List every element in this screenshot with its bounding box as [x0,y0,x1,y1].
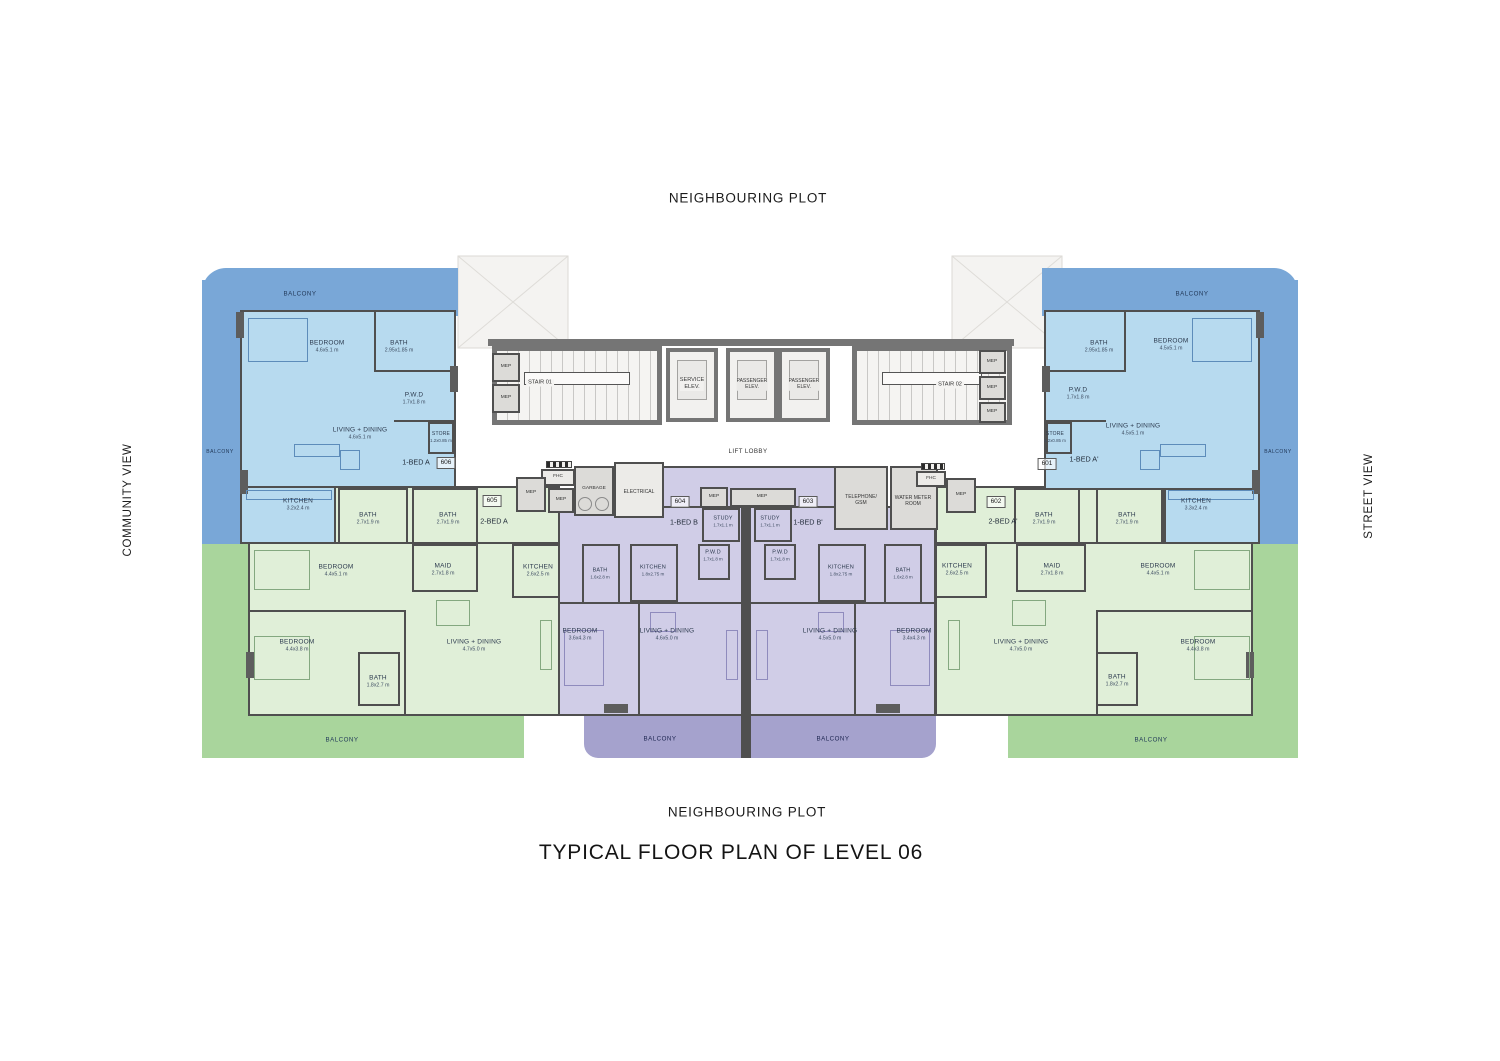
garbage-label: GARBAGE [582,486,606,492]
room-label-bedroom: BEDROOM4.4x5.1 m [319,563,354,578]
pillar [246,652,254,678]
room-label-living-dining: LIVING + DINING4.5x5.1 m [1106,422,1160,437]
wall [638,604,640,714]
unit-name-604: 1-BED B [670,518,698,527]
unit-number-603: 603 [799,496,818,508]
passenger-elev-label: PASSENGER ELEV. [789,378,820,391]
electrical-label: ELECTRICAL [624,489,655,495]
mep-label: MEP [987,409,997,415]
wall [248,610,406,612]
stair-02-landing [882,372,982,385]
wall [374,310,376,372]
furniture-sofa [726,630,738,680]
mep-label: MEP [556,497,566,503]
unit-name-601: 1-BED A' [1070,455,1099,464]
pillar [1256,312,1264,338]
furniture-table [340,450,360,470]
garbage-bin-1 [578,497,592,511]
balcony-band-top-right [1042,268,1298,316]
mep-label: MEP [987,385,997,391]
wall [1046,370,1126,372]
core-top-wall [488,339,1014,346]
mep-label: MEP [501,395,511,401]
furniture-sofa [948,620,960,670]
room-label-kitchen: KITCHEN2.6x2.5 m [523,563,553,578]
pillar [1042,366,1050,392]
telephone-gsm-label: TELEPHONE/ GSM [845,494,877,507]
balcony-band-right-lower [1248,544,1298,758]
room-label-kitchen: KITCHEN3.2x2.4 m [283,497,313,512]
room-label-bath: BATH2.95x1.85 m [385,339,414,354]
furniture-sofa [540,620,552,670]
furniture-bed [1192,318,1252,362]
room-label-bath: BATH2.95x1.85 m [1085,339,1114,354]
pillar [236,312,244,338]
furniture-table [1140,450,1160,470]
fhc-hatch-right [921,463,945,470]
furniture-sofa [294,444,340,457]
unit-number-606: 606 [437,457,456,469]
balcony-label: BALCONY [1134,737,1167,744]
room-label-kitchen: KITCHEN1.8x2.75 m [640,564,666,577]
balcony-band-bottom-center [584,714,936,758]
lift-lobby-label: LIFT LOBBY [729,448,768,456]
balcony-label: BALCONY [643,736,676,743]
wall [1096,610,1253,612]
room-label-bath: BATH1.8x2.7 m [367,674,390,689]
room-label-bedroom: BEDROOM4.4x3.8 m [1181,638,1216,653]
wall [404,610,406,716]
furniture-bed [254,550,310,590]
balcony-band-bottom-left [202,712,524,758]
room-label-bath: BATH1.8x2.7 m [1106,673,1129,688]
room-label-living-dining: LIVING + DINING4.6x5.1 m [333,426,387,441]
neighbouring-plot-bottom-label: NEIGHBOURING PLOT [668,805,826,820]
mep-label: MEP [709,494,719,500]
room-label-pwd: P.W.D1.7x1.8 m [1067,386,1090,401]
unit-name-602: 2-BED A' [989,517,1018,526]
garbage-bin-2 [595,497,609,511]
fhc-label: FHC [926,476,936,482]
unit-name-606: 1-BED A [402,458,430,467]
room-label-bath: BATH2.7x1.9 m [1116,511,1139,526]
room-label-pwd: P.W.D1.7x1.8 m [403,391,426,406]
wall [854,604,856,714]
room-label-bath: BATH2.7x1.9 m [1033,511,1056,526]
floor-plan-canvas: NEIGHBOURING PLOT NEIGHBOURING PLOT TYPI… [0,0,1500,1061]
wall [1096,610,1098,716]
stair-01-label: STAIR 01 [526,380,554,387]
wall [374,370,454,372]
room-label-maid: MAID2.7x1.8 m [432,562,455,577]
mep-label: MEP [526,490,536,496]
balcony-label: BALCONY [325,737,358,744]
room-label-kitchen: KITCHEN3.3x2.4 m [1181,497,1211,512]
unit-name-605: 2-BED A [480,517,508,526]
room-label-bath: BATH1.6x2.8 m [590,568,609,581]
balcony-label: BALCONY [1175,291,1208,298]
mep-label: MEP [987,359,997,365]
furniture-sofa [756,630,768,680]
neighbouring-plot-top-label: NEIGHBOURING PLOT [669,191,827,206]
pillar [876,704,900,713]
balcony-label: BALCONY [206,449,233,455]
room-label-bath: BATH1.6x2.8 m [893,568,912,581]
water-meter-room-label: WATER METER ROOM [895,495,931,508]
wall [1124,310,1126,372]
room-label-living-dining: LIVING + DINING4.6x5.0 m [640,627,694,642]
furniture-sofa [1160,444,1206,457]
passenger-elev-label: PASSENGER ELEV. [737,378,768,391]
room-label-bath: BATH2.7x1.9 m [437,511,460,526]
fhc-label: FHC [553,474,563,480]
mep-label: MEP [757,494,767,500]
mep-label: MEP [956,492,966,498]
room-label-pwd: P.W.D1.7x1.8 m [703,550,722,563]
balcony-label: BALCONY [283,291,316,298]
room-label-kitchen: KITCHEN2.6x2.5 m [942,562,972,577]
party-wall-center [741,506,751,758]
unit-number-605: 605 [483,495,502,507]
fhc-hatch-left [546,461,572,468]
furniture-bed [1194,550,1250,590]
pillar [450,366,458,392]
mep-label: MEP [501,364,511,370]
room-label-study: STUDY1.7x1.1 m [760,516,779,529]
room-label-bedroom: BEDROOM3.4x4.3 m [897,627,932,642]
furniture-table [1012,600,1046,626]
room-label-bath: BATH2.7x1.9 m [357,511,380,526]
room-label-store: STORE1.2x0.85 m [1044,431,1066,443]
room-label-pwd: P.W.D1.7x1.8 m [770,550,789,563]
room-label-bedroom: BEDROOM4.4x5.1 m [1141,562,1176,577]
unit-name-603: 1-BED B' [793,518,822,527]
room-label-bedroom: BEDROOM3.6x4.3 m [563,627,598,642]
wall [558,602,744,604]
pillar [604,704,628,713]
unit-number-604: 604 [671,496,690,508]
community-view-label: COMMUNITY VIEW [122,443,134,556]
balcony-label: BALCONY [816,736,849,743]
stair-02-label: STAIR 02 [936,382,964,389]
page-title: TYPICAL FLOOR PLAN OF LEVEL 06 [539,841,923,865]
furniture-bed [248,318,308,362]
room-label-store: STORE1.2x0.85 m [430,431,452,443]
unit-number-601: 601 [1038,458,1057,470]
room-label-bedroom: BEDROOM4.4x3.8 m [280,638,315,653]
unit-number-602: 602 [987,496,1006,508]
room-label-living-dining: LIVING + DINING4.7x5.0 m [447,638,501,653]
room-label-living-dining: LIVING + DINING4.5x5.0 m [803,627,857,642]
service-elev-label: SERVICE ELEV. [680,377,704,391]
street-view-label: STREET VIEW [1363,453,1375,538]
room-label-study: STUDY1.7x1.1 m [713,516,732,529]
room-label-bedroom: BEDROOM4.6x5.1 m [310,339,345,354]
room-label-maid: MAID2.7x1.8 m [1041,562,1064,577]
room-label-bedroom: BEDROOM4.5x5.1 m [1154,337,1189,352]
wall [748,602,936,604]
furniture-table [436,600,470,626]
room-label-living-dining: LIVING + DINING4.7x5.0 m [994,638,1048,653]
room-label-kitchen: KITCHEN1.8x2.75 m [828,564,854,577]
balcony-label: BALCONY [1264,449,1291,455]
